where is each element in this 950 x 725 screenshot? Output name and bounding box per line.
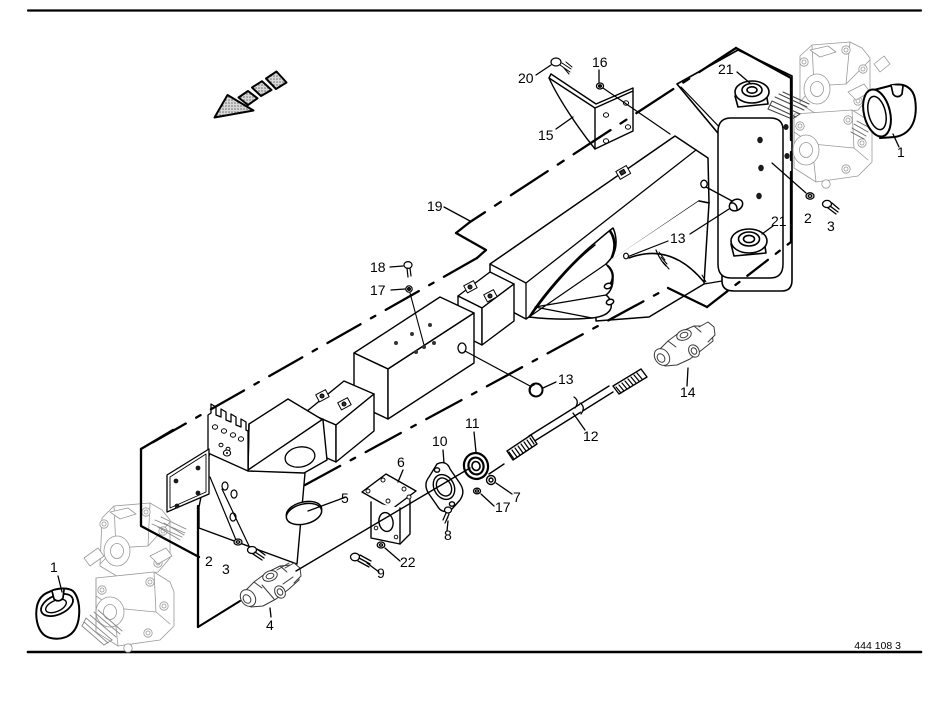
svg-text:17: 17 — [495, 499, 511, 515]
svg-text:20: 20 — [518, 70, 534, 86]
svg-text:21: 21 — [771, 213, 787, 229]
svg-text:15: 15 — [538, 127, 554, 143]
svg-text:13: 13 — [558, 371, 574, 387]
svg-text:16: 16 — [592, 54, 608, 70]
svg-text:9: 9 — [377, 565, 385, 581]
svg-text:10: 10 — [432, 433, 448, 449]
svg-text:444 108 3: 444 108 3 — [854, 640, 901, 652]
svg-text:19: 19 — [427, 198, 443, 214]
svg-text:4: 4 — [266, 617, 274, 633]
svg-text:3: 3 — [222, 561, 230, 577]
svg-text:8: 8 — [444, 527, 452, 543]
svg-text:2: 2 — [205, 553, 213, 569]
svg-text:1: 1 — [50, 559, 58, 575]
svg-text:22: 22 — [400, 554, 416, 570]
svg-text:21: 21 — [718, 61, 734, 77]
svg-text:11: 11 — [465, 415, 480, 431]
svg-text:3: 3 — [827, 218, 835, 234]
svg-text:13: 13 — [670, 230, 686, 246]
svg-text:7: 7 — [513, 489, 521, 505]
svg-text:18: 18 — [370, 259, 386, 275]
svg-text:6: 6 — [397, 454, 405, 470]
svg-text:14: 14 — [680, 384, 696, 400]
svg-text:2: 2 — [804, 210, 812, 226]
svg-text:17: 17 — [370, 282, 386, 298]
